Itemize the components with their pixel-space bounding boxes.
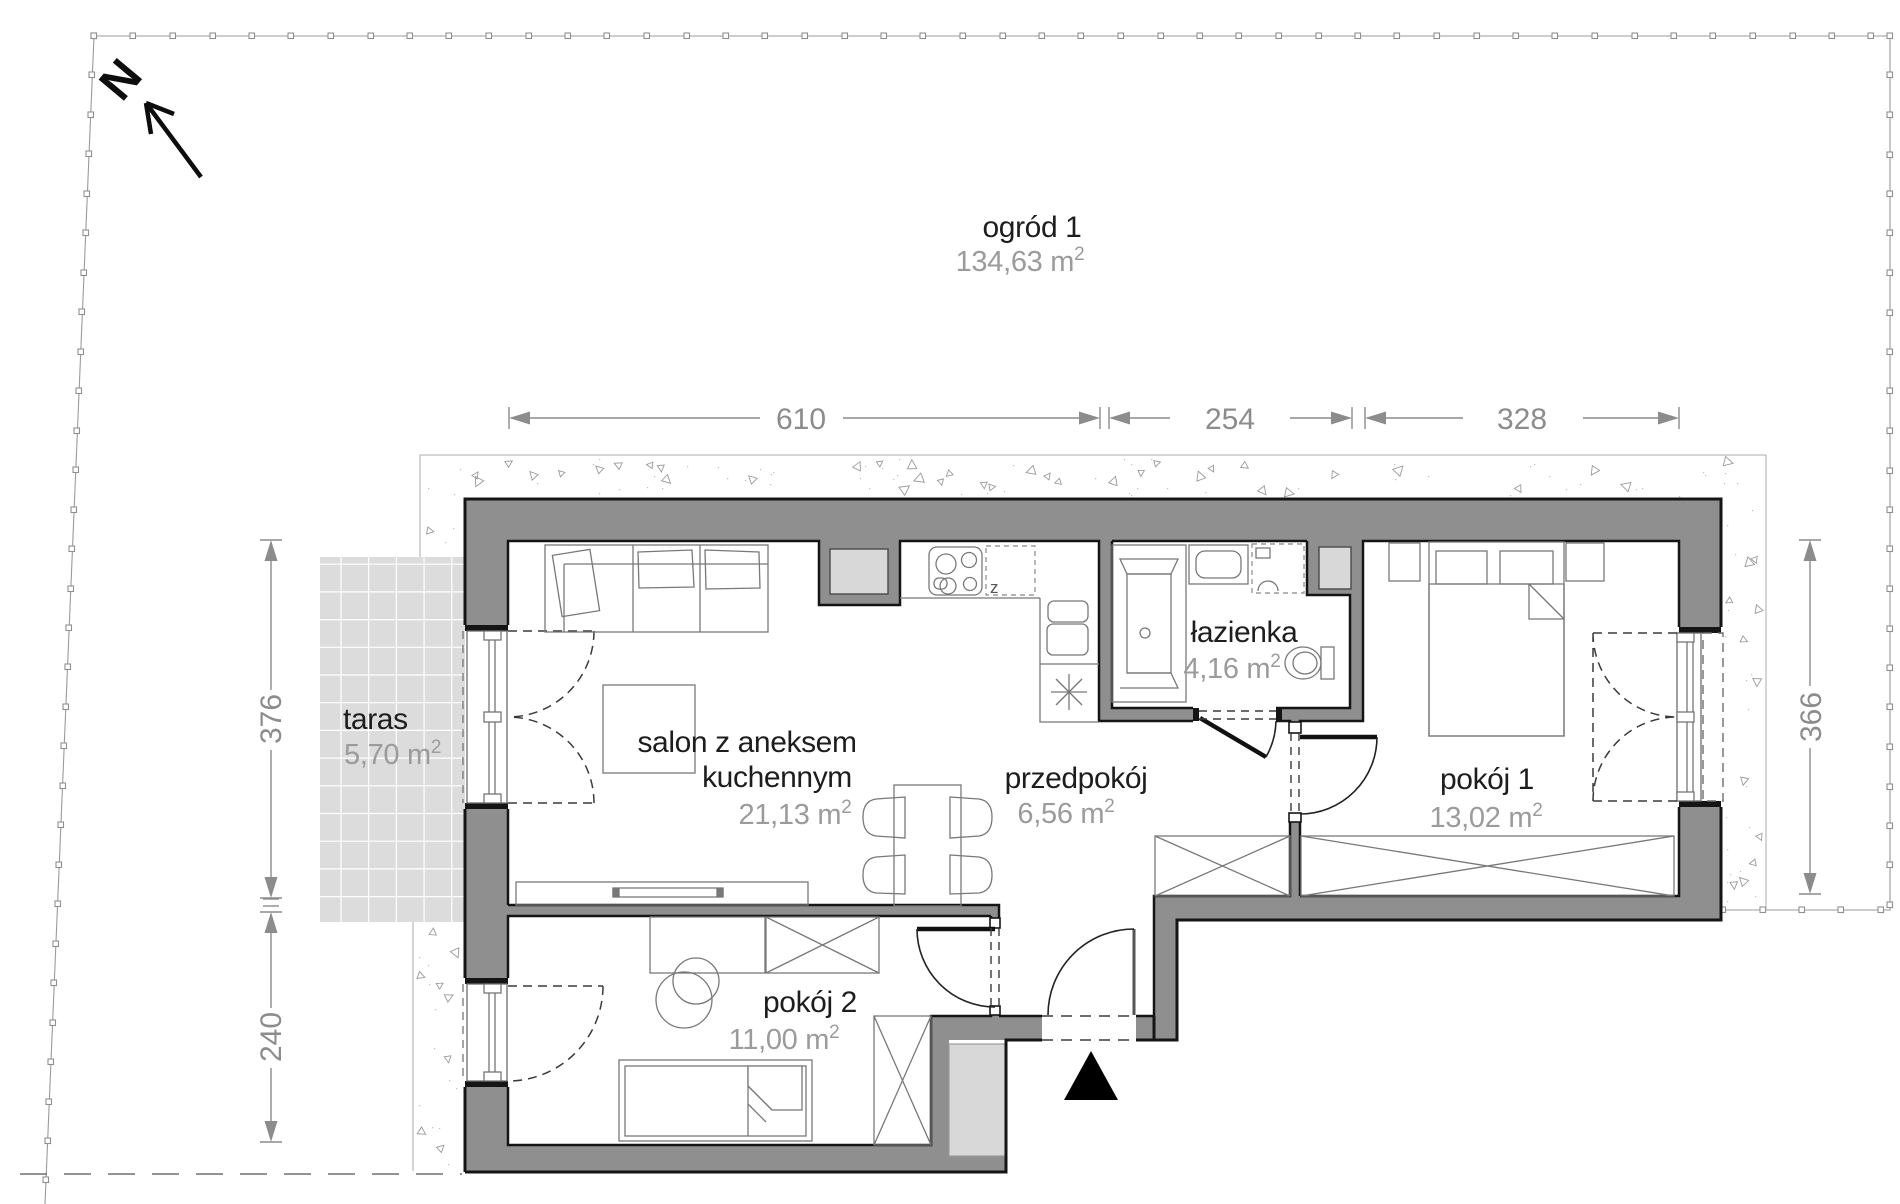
- svg-text:6,56 m2: 6,56 m2: [1017, 796, 1114, 830]
- svg-text:pokój 2: pokój 2: [763, 986, 857, 1019]
- svg-text:11,00 m2: 11,00 m2: [729, 1022, 840, 1056]
- svg-text:13,02 m2: 13,02 m2: [1430, 800, 1543, 834]
- svg-text:254: 254: [1205, 403, 1255, 436]
- svg-text:łazienka: łazienka: [1191, 616, 1299, 649]
- svg-text:pokój 1: pokój 1: [1440, 763, 1534, 796]
- svg-text:z: z: [990, 578, 999, 597]
- svg-text:328: 328: [1497, 403, 1547, 436]
- svg-text:610: 610: [776, 403, 826, 436]
- svg-text:366: 366: [1795, 692, 1828, 742]
- svg-text:5,70 m2: 5,70 m2: [344, 737, 441, 771]
- svg-text:ogród 1: ogród 1: [983, 211, 1082, 244]
- svg-text:134,63 m2: 134,63 m2: [956, 244, 1085, 278]
- svg-text:4,16 m2: 4,16 m2: [1183, 651, 1280, 685]
- svg-text:salon z aneksem: salon z aneksem: [637, 726, 856, 759]
- svg-text:taras: taras: [343, 703, 408, 736]
- svg-text:przedpokój: przedpokój: [1005, 762, 1148, 795]
- svg-text:240: 240: [255, 1012, 288, 1062]
- svg-text:21,13 m2: 21,13 m2: [739, 797, 852, 831]
- svg-text:kuchennym: kuchennym: [702, 761, 852, 794]
- svg-text:376: 376: [255, 694, 288, 744]
